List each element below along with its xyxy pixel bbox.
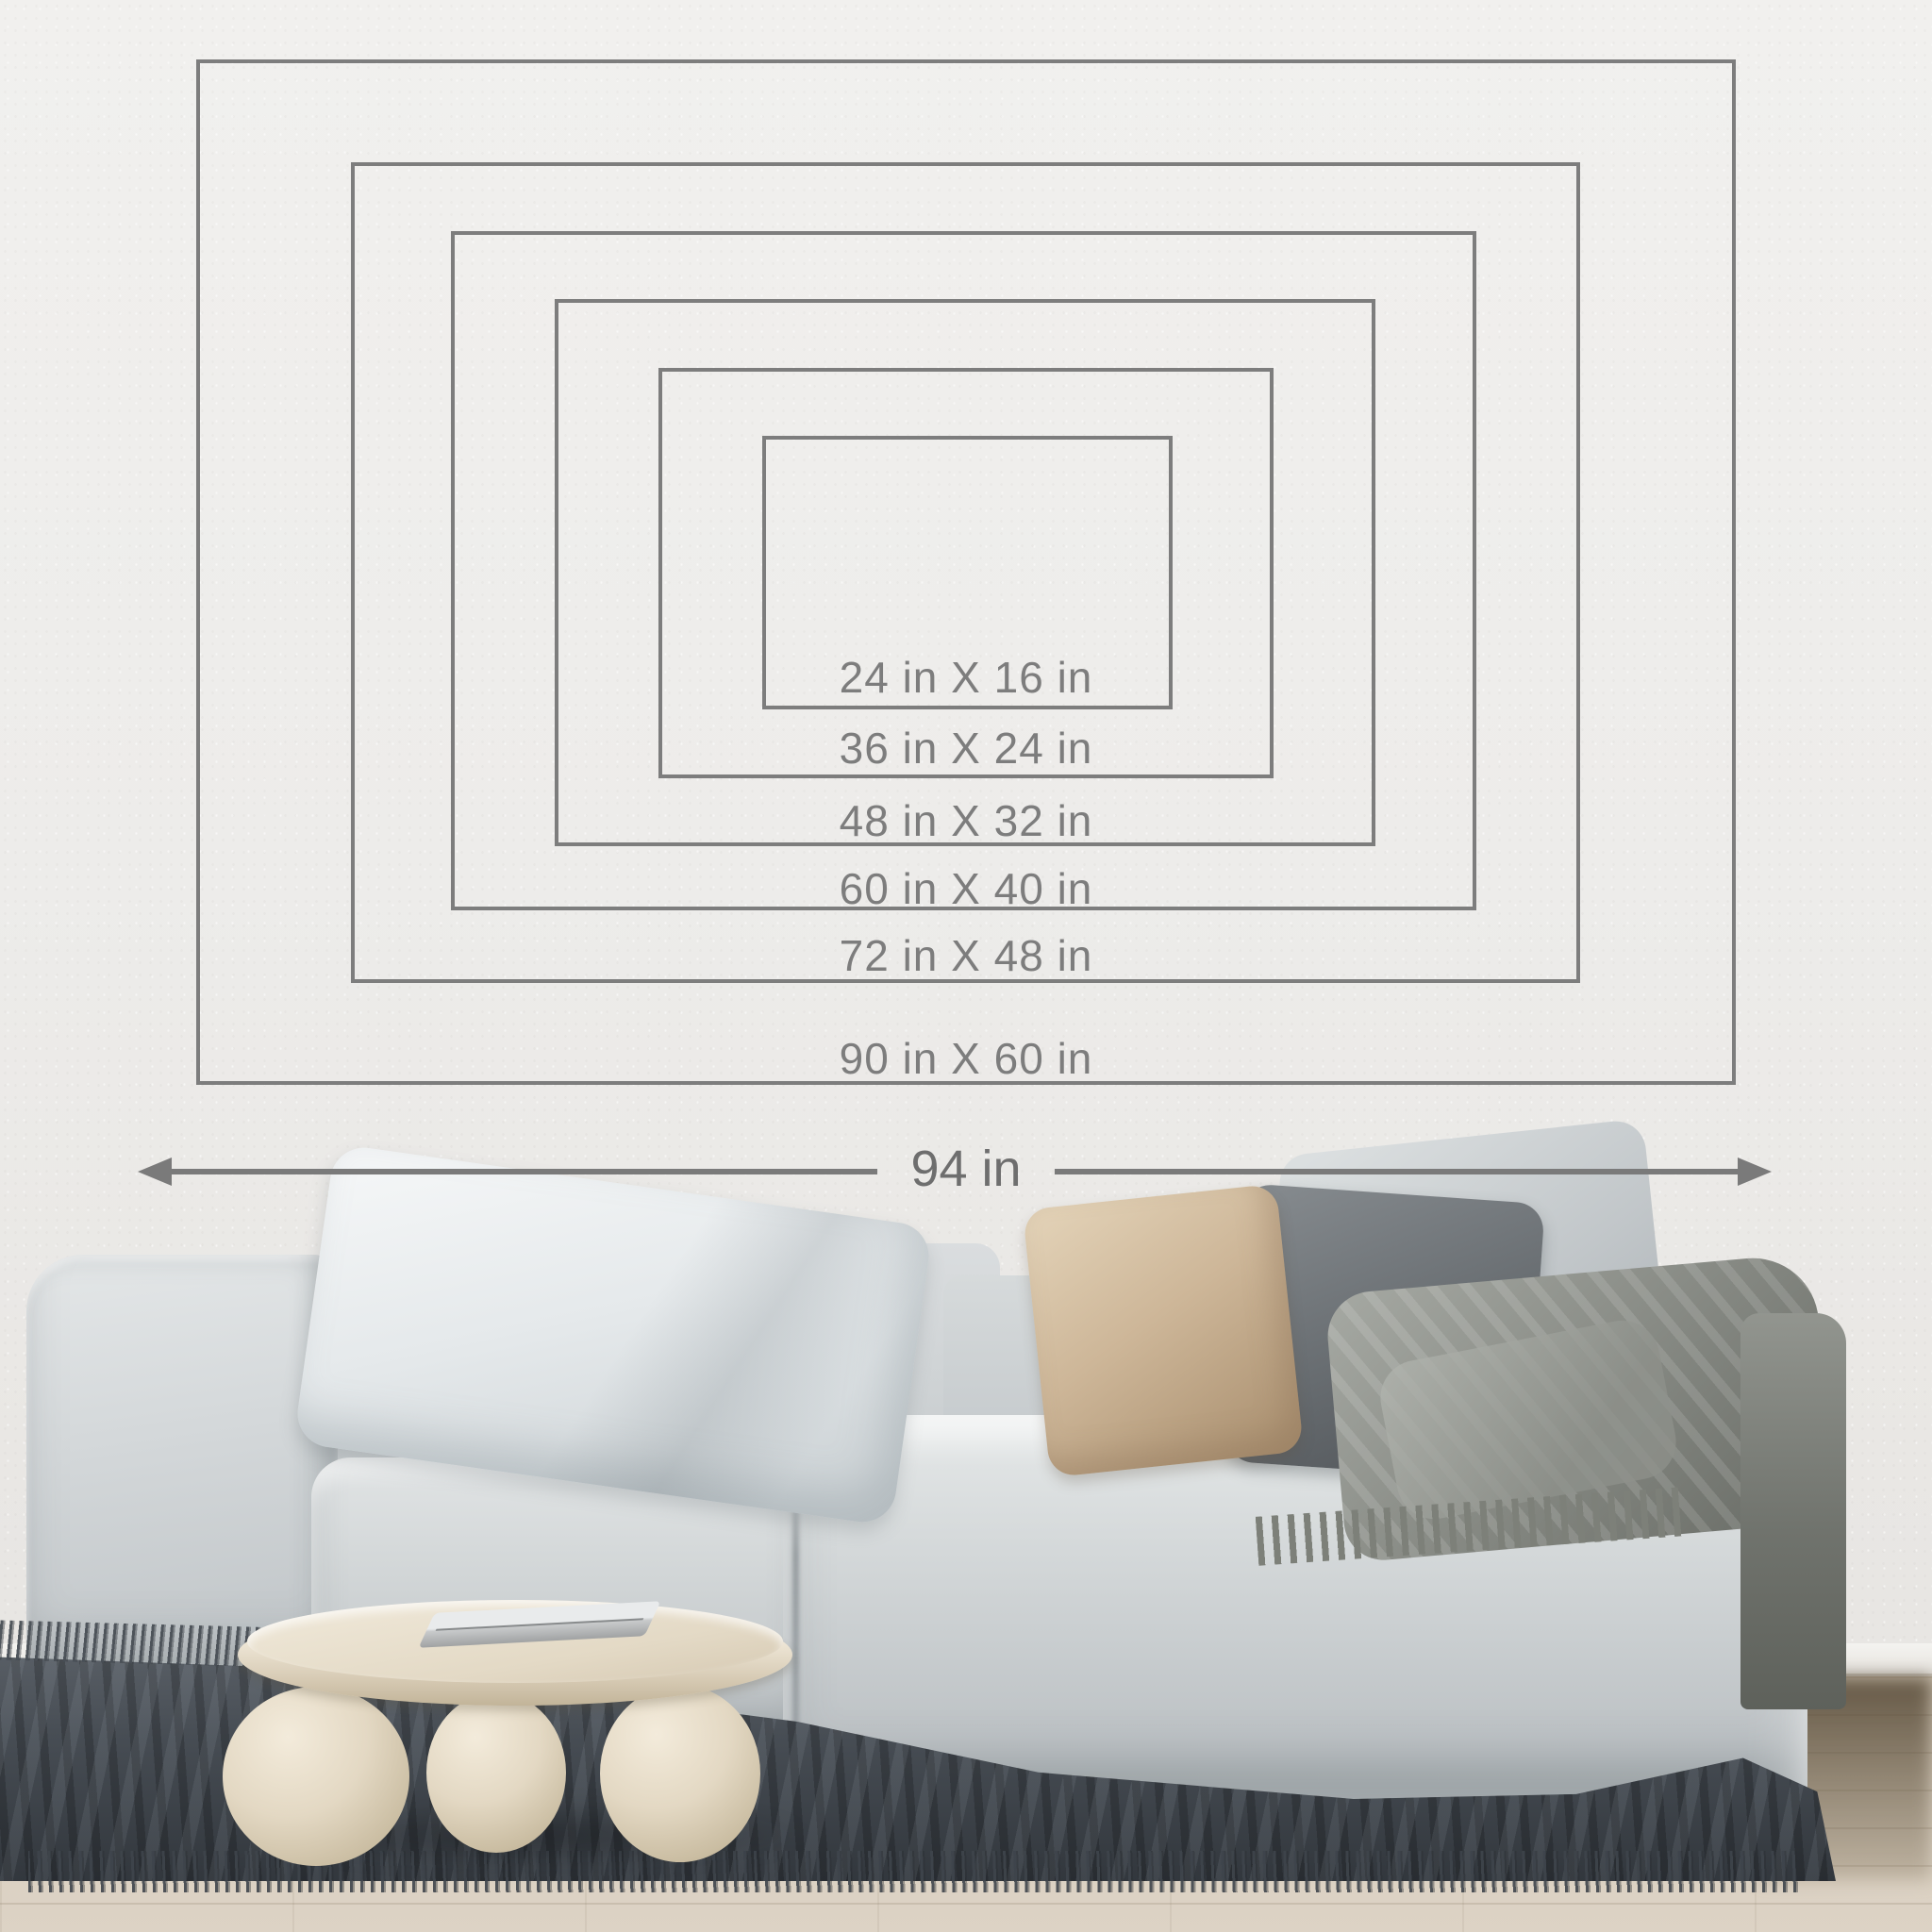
table-ball-leg-middle — [426, 1692, 566, 1853]
measure-arrowhead-right-icon — [1738, 1158, 1772, 1186]
size-label-48x32: 48 in X 32 in — [0, 795, 1932, 846]
throw-blanket-drape — [1740, 1313, 1846, 1709]
size-guide-mockup: 24 in X 16 in 36 in X 24 in 48 in X 32 i… — [0, 0, 1932, 1932]
measure-arrow-line-right — [1055, 1169, 1745, 1174]
sofa-left-armrest — [26, 1255, 338, 1675]
size-label-24x16: 24 in X 16 in — [0, 652, 1932, 703]
table-ball-leg-right — [600, 1685, 760, 1862]
pillow-beige — [1023, 1184, 1304, 1478]
size-label-36x24: 36 in X 24 in — [0, 723, 1932, 774]
measure-arrow-line-left — [158, 1169, 877, 1174]
size-label-90x60: 90 in X 60 in — [0, 1033, 1932, 1084]
measure-arrow-label: 94 in — [868, 1140, 1064, 1198]
size-label-60x40: 60 in X 40 in — [0, 863, 1932, 914]
size-label-72x48: 72 in X 48 in — [0, 930, 1932, 981]
table-ball-leg-left — [223, 1687, 409, 1866]
